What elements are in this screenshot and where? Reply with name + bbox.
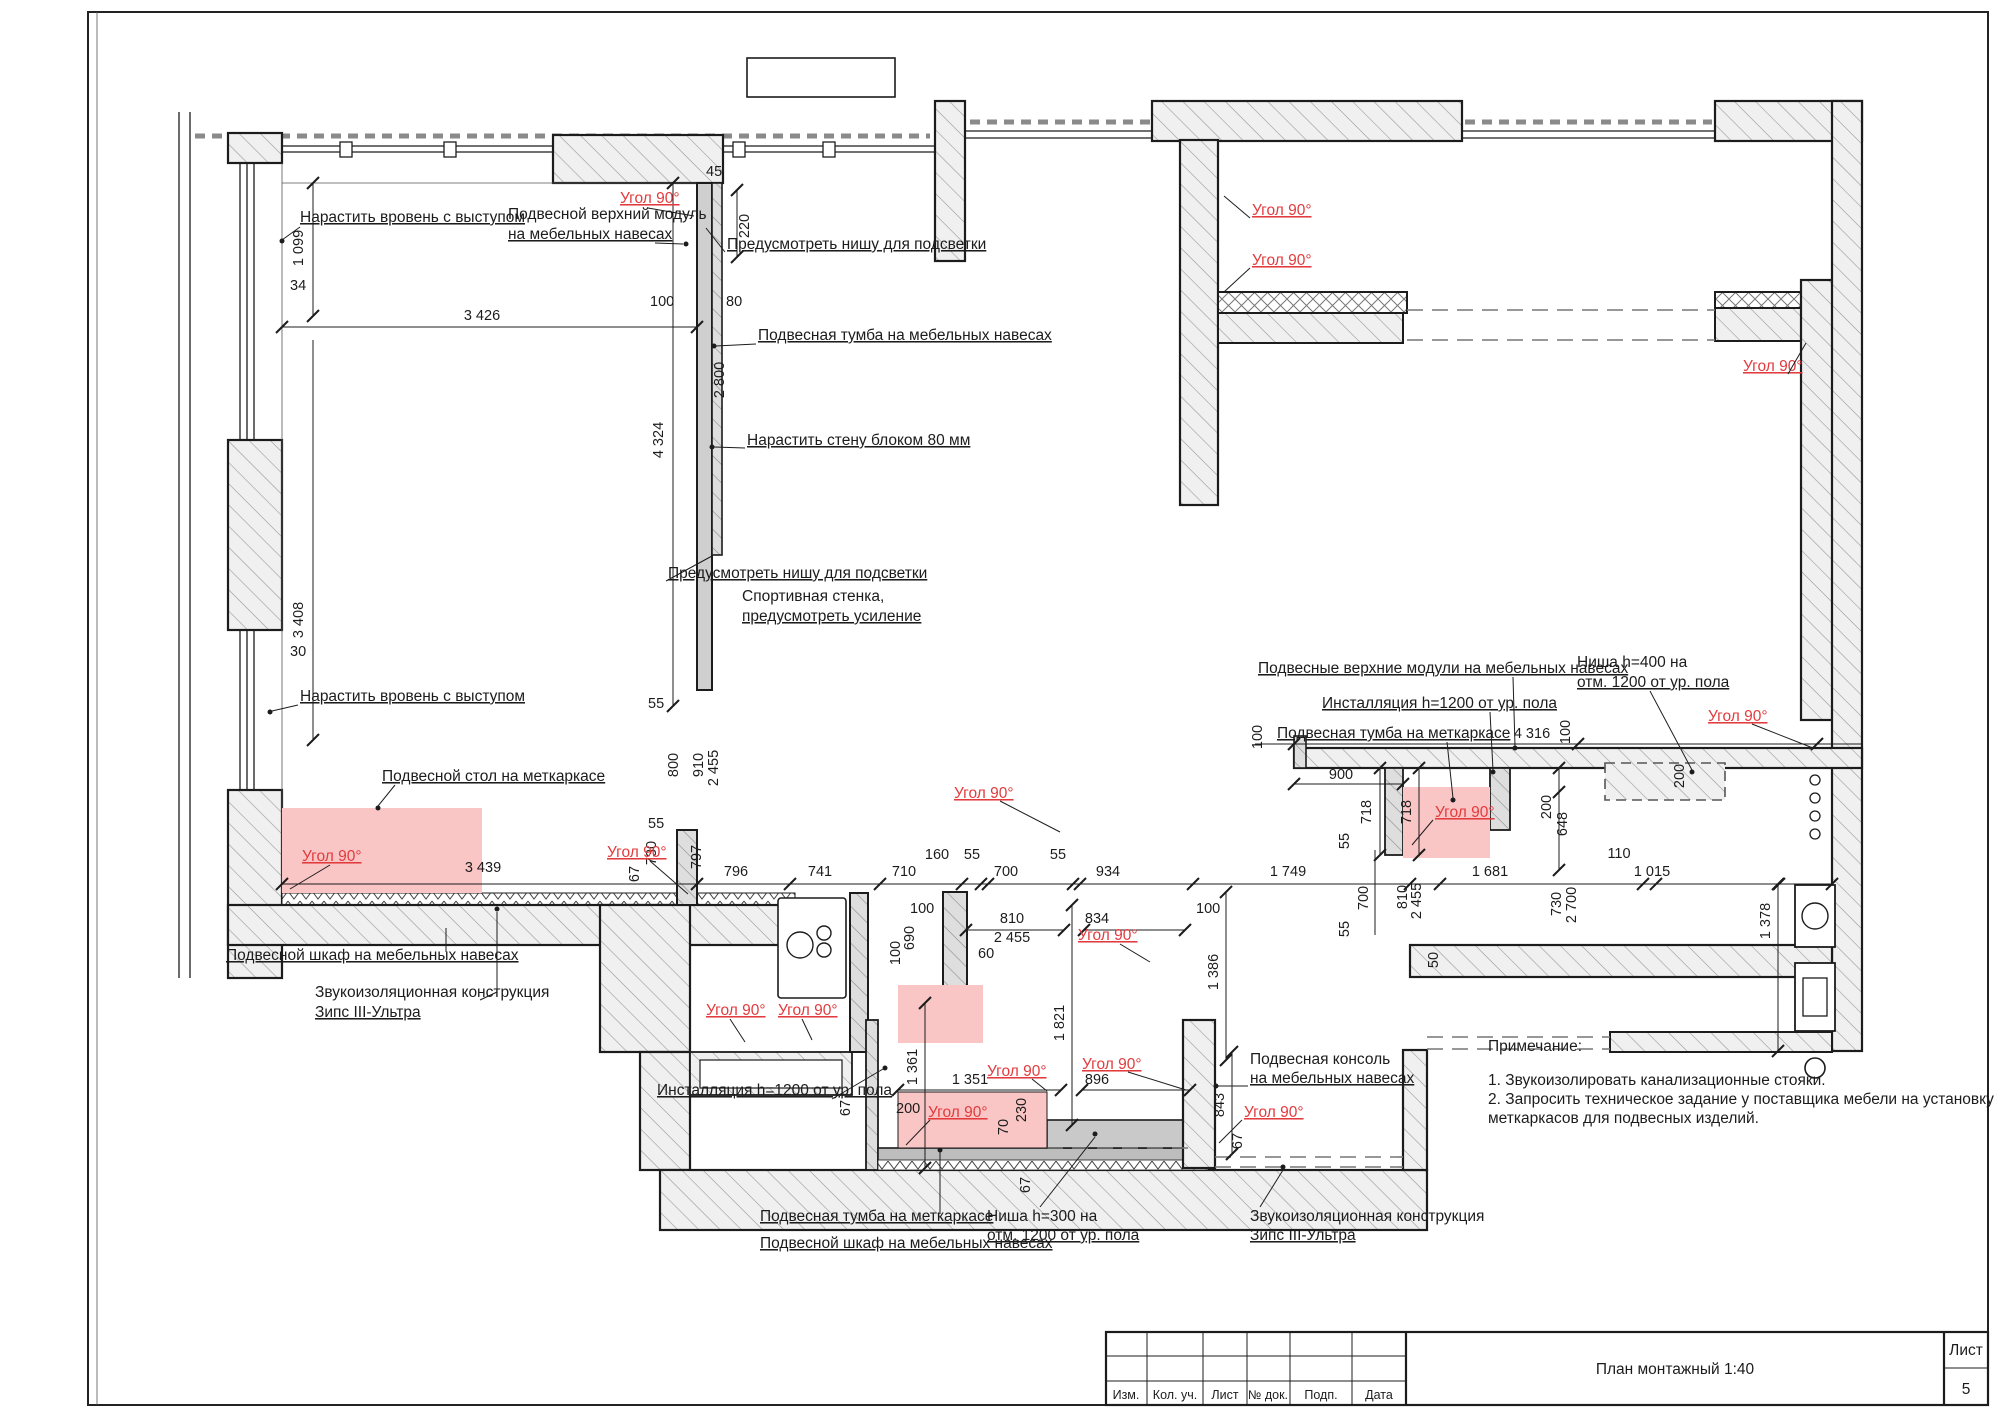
angle-90-label-1: Угол 90°: [620, 190, 680, 207]
dim-896: 896: [1085, 1072, 1109, 1088]
angle-90-label-16: Угол 90°: [1708, 708, 1768, 725]
label-sport-1: Спортивная стенка,: [742, 588, 884, 605]
angle-90-label-5: Угол 90°: [302, 848, 362, 865]
dim-80: 80: [726, 294, 742, 310]
dim-3439: 3 439: [465, 860, 501, 876]
dim-3408: 3 408: [291, 602, 307, 638]
label-niche300-1: Ниша h=300 на: [987, 1208, 1098, 1225]
dim-1099: 1 099: [291, 230, 307, 266]
label-extend-block: Нарастить стену блоком 80 мм: [747, 432, 970, 449]
label-extend-flush-2: Нарастить вровень с выступом: [300, 688, 525, 705]
dim-230: 230: [1014, 1098, 1030, 1122]
label-console-2: на мебельных навесах: [1250, 1070, 1415, 1087]
label-installation-2: Инсталляция h=1200 от ур. пола: [1322, 695, 1557, 712]
dim-1351: 1 351: [952, 1072, 988, 1088]
angle-90-label-6: Угол 90°: [607, 844, 667, 861]
dim-4324: 4 324: [651, 422, 667, 458]
dim-70: 70: [996, 1119, 1012, 1135]
label-niche400-2: отм. 1200 от ур. пола: [1577, 674, 1730, 691]
sheet-number: 5: [1962, 1381, 1971, 1398]
dim-30: 30: [290, 644, 306, 660]
dim-55-d: 55: [1050, 847, 1066, 863]
dim-45: 45: [706, 164, 722, 180]
label-sound-bot-1: Звукоизоляционная конструкция: [1250, 1208, 1484, 1225]
dim-800: 800: [666, 753, 682, 777]
label-sound-bot-2: Зипс III-Ультра: [1250, 1227, 1356, 1244]
dim-834: 834: [1085, 911, 1109, 927]
angle-90-label-7: Угол 90°: [706, 1002, 766, 1019]
dim-1378: 1 378: [1758, 903, 1774, 939]
dim-1386: 1 386: [1206, 954, 1222, 990]
dim-34: 34: [290, 278, 306, 294]
dim-55-b: 55: [648, 816, 664, 832]
sheet-label: Лист: [1949, 1342, 1983, 1359]
title-col-data: Дата: [1365, 1388, 1393, 1402]
label-niche-light-2: Предусмотреть нишу для подсветки: [668, 565, 927, 582]
label-niche-light-1: Предусмотреть нишу для подсветки: [727, 236, 986, 253]
dim-200-c: 200: [1672, 764, 1688, 788]
label-hang-tumba-frame-1: Подвесная тумба на меткаркасе: [760, 1208, 993, 1225]
label-hang-cab-furn-1: Подвесной шкаф на мебельных навесах: [226, 947, 519, 964]
dim-648: 648: [1555, 812, 1571, 836]
dim-200-a: 200: [896, 1101, 920, 1117]
notes-item-1: 1. Звукоизолировать канализационные стоя…: [1488, 1072, 1826, 1089]
dim-4316: 4 316: [1514, 726, 1550, 742]
dim-1361: 1 361: [905, 1049, 921, 1085]
dim-60: 60: [978, 946, 994, 962]
angle-90-label-10: Угол 90°: [954, 785, 1014, 802]
angle-90-label-8: Угол 90°: [778, 1002, 838, 1019]
title-col-doc: № док.: [1248, 1388, 1288, 1402]
dim-2455-a: 2 455: [706, 750, 722, 786]
dim-2455-c: 2 455: [1409, 883, 1425, 919]
dim-50: 50: [1426, 952, 1442, 968]
dim-100-d: 100: [1196, 901, 1220, 917]
dim-1821: 1 821: [1052, 1005, 1068, 1041]
drawing-title: План монтажный 1:40: [1596, 1361, 1755, 1378]
label-niche300-2: отм. 1200 от ур. пола: [987, 1227, 1140, 1244]
dim-67-b: 67: [838, 1100, 854, 1116]
dim-843: 843: [1212, 1093, 1228, 1117]
angle-90-label-3: Угол 90°: [1252, 252, 1312, 269]
dim-55-c: 55: [964, 847, 980, 863]
dim-1749: 1 749: [1270, 864, 1306, 880]
dim-67-a: 67: [627, 866, 643, 882]
dim-700-b: 700: [1356, 886, 1372, 910]
angle-90-label-4: Угол 90°: [1743, 358, 1803, 375]
dim-100-e: 100: [1250, 725, 1266, 749]
dim-220: 220: [737, 214, 753, 238]
notes-heading: Примечание:: [1488, 1038, 1582, 1055]
label-hang-table: Подвесной стол на меткаркасе: [382, 768, 605, 785]
dim-2700: 2 700: [1564, 887, 1580, 923]
dim-55-f: 55: [1337, 921, 1353, 937]
title-col-izm: Изм.: [1113, 1388, 1140, 1402]
dim-1015: 1 015: [1634, 864, 1670, 880]
angle-90-label-14: Угол 90°: [1244, 1104, 1304, 1121]
angle-90-label-12: Угол 90°: [987, 1063, 1047, 1080]
dim-110: 110: [1607, 846, 1630, 862]
angle-90-label-2: Угол 90°: [1252, 202, 1312, 219]
label-hang-tumba-frame-2: Подвесная тумба на меткаркасе: [1277, 725, 1510, 742]
angle-90-label-9: Угол 90°: [1078, 927, 1138, 944]
dim-1681: 1 681: [1472, 864, 1508, 880]
wc-tumba-zone: [898, 985, 983, 1043]
dim-910: 910: [691, 753, 707, 777]
floor-plan-canvas: 1 099 34 3 426 45 220 100 80 2 800 4 324…: [0, 0, 2000, 1414]
dim-200-b: 200: [1539, 795, 1555, 819]
walls: [179, 58, 1862, 1230]
label-niche400-1: Ниша h=400 на: [1577, 654, 1688, 671]
dim-934: 934: [1096, 864, 1120, 880]
label-console-1: Подвесная консоль: [1250, 1051, 1390, 1068]
title-block: Изм. Кол. уч. Лист № док. Подп. Дата Пла…: [1106, 1332, 1988, 1405]
dim-3426: 3 426: [464, 308, 500, 324]
label-upper-modules-right: Подвесные верхние модули на мебельных на…: [1258, 660, 1628, 677]
dim-710: 710: [892, 864, 916, 880]
label-upper-module-1: Подвесной верхний модуль: [508, 206, 707, 223]
dim-160: 160: [925, 847, 949, 863]
dim-100-c: 100: [888, 941, 904, 965]
title-col-list: Лист: [1211, 1388, 1238, 1402]
vent-shaft: [747, 58, 895, 97]
dim-810-a: 810: [1000, 911, 1024, 927]
label-hang-tumba-furn: Подвесная тумба на мебельных навесах: [758, 327, 1052, 344]
dim-718-a: 718: [1359, 800, 1375, 824]
angle-90-label-11: Угол 90°: [928, 1104, 988, 1121]
dim-2800: 2 800: [712, 362, 728, 398]
label-sport-2: предусмотреть усиление: [742, 608, 921, 625]
notes-item-2: 2. Запросить техническое задание у поста…: [1488, 1091, 1994, 1108]
dim-741: 741: [808, 864, 832, 880]
drawing-sheet: 1 099 34 3 426 45 220 100 80 2 800 4 324…: [0, 0, 2000, 1414]
dim-67-d: 67: [1230, 1133, 1246, 1149]
dim-690: 690: [902, 926, 918, 950]
dim-100-f: 100: [1558, 720, 1574, 744]
kitchen-tumba-zone: [1403, 787, 1490, 858]
console-surface: [1047, 1120, 1183, 1148]
niche-400-outline: [1605, 763, 1725, 800]
dim-700-a: 700: [994, 864, 1018, 880]
dim-55-a: 55: [648, 696, 664, 712]
title-col-podp: Подп.: [1304, 1388, 1337, 1402]
angle-90-label-13: Угол 90°: [1082, 1056, 1142, 1073]
dim-797: 797: [689, 845, 705, 869]
dim-730-b: 730: [1549, 892, 1565, 916]
title-col-kol: Кол. уч.: [1153, 1388, 1197, 1402]
dim-100-wall: 100: [650, 294, 674, 310]
dim-55-e: 55: [1337, 833, 1353, 849]
dim-900: 900: [1329, 767, 1353, 783]
angle-90-label-15: Угол 90°: [1435, 804, 1495, 821]
dim-100-b: 100: [910, 901, 934, 917]
dim-2455-b: 2 455: [994, 930, 1030, 946]
label-extend-flush-1: Нарастить вровень с выступом: [300, 209, 525, 226]
dim-718-b: 718: [1399, 800, 1415, 824]
dim-67-c: 67: [1018, 1177, 1034, 1193]
label-sound-left-1: Звукоизоляционная конструкция: [315, 984, 549, 1001]
label-upper-module-2: на мебельных навесах: [508, 226, 673, 243]
notes-item-3: меткаркасов для подвесных изделий.: [1488, 1110, 1759, 1127]
dim-796: 796: [724, 864, 748, 880]
label-sound-left-2: Зипс III-Ультра: [315, 1004, 421, 1021]
